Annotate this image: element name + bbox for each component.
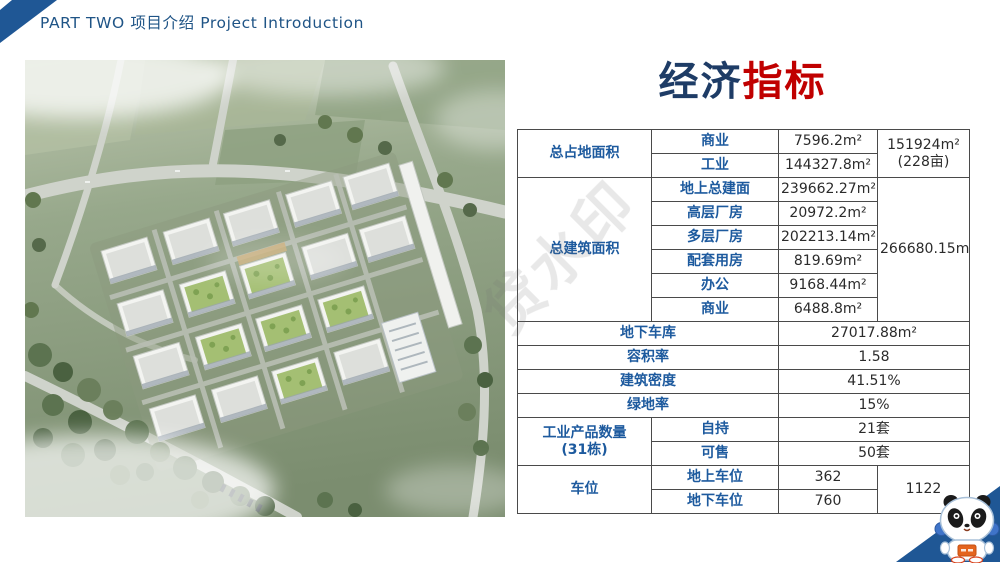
cell-simple-label: 绿地率 xyxy=(518,394,779,418)
slide: PART TWO 项目介绍 Project Introduction xyxy=(0,0,1000,562)
cell-land-item-name: 商业 xyxy=(652,130,779,154)
cell-simple-value: 27017.88m² xyxy=(779,322,970,346)
table-row: 工业产品数量 (31栋) 自持 21套 xyxy=(518,418,970,442)
table-row: 绿地率 15% xyxy=(518,394,970,418)
cell-parking-label: 车位 xyxy=(518,466,652,514)
cell-building-item-name: 办公 xyxy=(652,274,779,298)
page-title: 经济指标 xyxy=(515,60,970,104)
cell-building-item-value: 819.69m² xyxy=(779,250,878,274)
page-title-red: 指标 xyxy=(743,59,827,105)
panda-astronaut-mascot-icon xyxy=(934,493,1000,563)
cell-land-item-value: 144327.8m² xyxy=(779,154,878,178)
page-title-blue: 经济 xyxy=(659,59,743,105)
cell-building-item-value: 20972.2m² xyxy=(779,202,878,226)
table-row: 地下车库 27017.88m² xyxy=(518,322,970,346)
cell-building-item-name: 商业 xyxy=(652,298,779,322)
cell-simple-label: 容积率 xyxy=(518,346,779,370)
table-row: 建筑密度 41.51% xyxy=(518,370,970,394)
cell-building-item-value: 9168.44m² xyxy=(779,274,878,298)
cell-products-item-value: 21套 xyxy=(779,418,970,442)
cell-parking-item-name: 地上车位 xyxy=(652,466,779,490)
cell-land-label: 总占地面积 xyxy=(518,130,652,178)
cell-parking-item-value: 760 xyxy=(779,490,878,514)
cell-simple-value: 41.51% xyxy=(779,370,970,394)
cell-building-total: 266680.15m² xyxy=(878,178,970,322)
cell-land-total: 151924m² (228亩) xyxy=(878,130,970,178)
cell-building-item-name: 多层厂房 xyxy=(652,226,779,250)
cell-products-item-name: 可售 xyxy=(652,442,779,466)
economic-indicators-table-wrap: 总占地面积 商业 7596.2m² 151924m² (228亩) 工业 144… xyxy=(517,129,970,514)
cell-building-item-name: 高层厂房 xyxy=(652,202,779,226)
aerial-rendering-image xyxy=(25,60,505,517)
cell-products-item-value: 50套 xyxy=(779,442,970,466)
cell-simple-label: 地下车库 xyxy=(518,322,779,346)
table-row: 总占地面积 商业 7596.2m² 151924m² (228亩) xyxy=(518,130,970,154)
cell-parking-item-value: 362 xyxy=(779,466,878,490)
cell-building-item-value: 202213.14m² xyxy=(779,226,878,250)
cell-products-label: 工业产品数量 (31栋) xyxy=(518,418,652,466)
table-row: 容积率 1.58 xyxy=(518,346,970,370)
cell-simple-value: 15% xyxy=(779,394,970,418)
cell-simple-value: 1.58 xyxy=(779,346,970,370)
cell-land-item-name: 工业 xyxy=(652,154,779,178)
header-title: PART TWO 项目介绍 Project Introduction xyxy=(40,11,364,33)
aerial-rendering-svg xyxy=(25,60,505,517)
cell-simple-label: 建筑密度 xyxy=(518,370,779,394)
cell-land-item-value: 7596.2m² xyxy=(779,130,878,154)
cell-parking-item-name: 地下车位 xyxy=(652,490,779,514)
cell-building-item-name: 配套用房 xyxy=(652,250,779,274)
cell-products-item-name: 自持 xyxy=(652,418,779,442)
cell-building-label: 总建筑面积 xyxy=(518,178,652,322)
table-row: 总建筑面积 地上总建面 239662.27m² 266680.15m² xyxy=(518,178,970,202)
cell-building-item-value: 239662.27m² xyxy=(779,178,878,202)
cell-building-item-value: 6488.8m² xyxy=(779,298,878,322)
cell-building-item-name: 地上总建面 xyxy=(652,178,779,202)
economic-indicators-table: 总占地面积 商业 7596.2m² 151924m² (228亩) 工业 144… xyxy=(517,129,970,514)
